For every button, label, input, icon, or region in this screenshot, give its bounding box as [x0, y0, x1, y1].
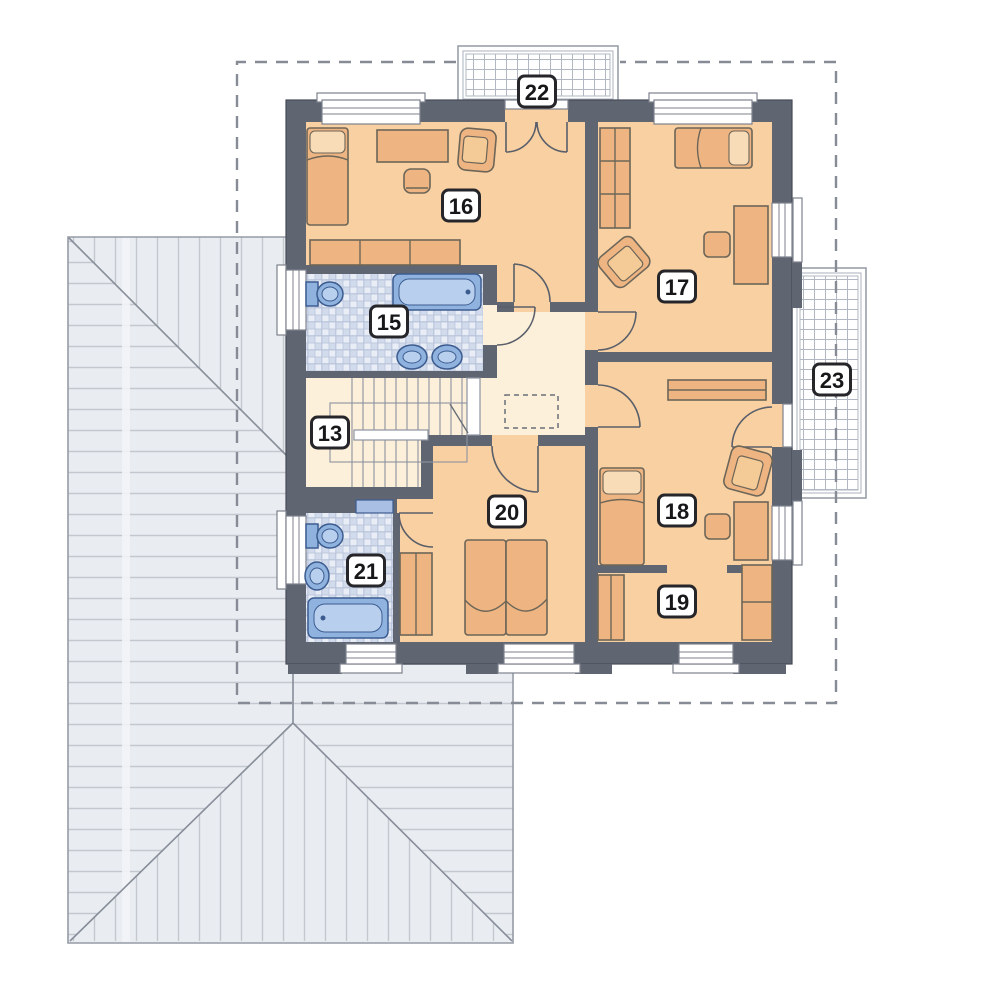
side-table	[704, 232, 730, 257]
sink-icon	[397, 345, 427, 369]
room-19-opening	[667, 565, 727, 573]
balcony-23-threshold	[783, 404, 792, 447]
room-badge-20: 20	[489, 496, 526, 527]
armchair	[457, 128, 497, 173]
room-20-door-opening	[492, 435, 538, 446]
toilet-icon	[306, 524, 343, 548]
roof-valley-band	[122, 237, 130, 942]
room-badge-15: 15	[371, 306, 408, 337]
room-badge-17: 17	[659, 271, 696, 302]
pilaster-bottom-4	[733, 664, 786, 674]
bathtub-icon	[393, 274, 481, 310]
room-18-door-opening	[585, 385, 598, 427]
pilaster-bottom-1	[288, 664, 342, 674]
room-badge-label: 22	[525, 80, 549, 105]
window-room-16	[317, 93, 425, 124]
room-badge-label: 16	[449, 194, 473, 219]
stool	[404, 169, 430, 193]
window-room-20-bottom	[498, 644, 580, 673]
bed-pillow	[603, 471, 641, 494]
sink-icon	[432, 345, 462, 369]
floor-plan-page: 13151617181920212223	[0, 0, 994, 1000]
room-badge-21: 21	[348, 555, 385, 586]
double-bed-right	[506, 540, 547, 635]
pilaster-bottom-2	[466, 664, 498, 674]
bathtub-icon	[308, 598, 388, 638]
hall-floor	[497, 312, 585, 435]
bathroom-21-door-opening	[397, 499, 433, 513]
room-badge-label: 21	[354, 559, 378, 584]
window-bathroom-21	[277, 511, 306, 589]
bed-pillow	[310, 131, 345, 153]
room-badge-16: 16	[443, 190, 480, 221]
room-badge-18: 18	[659, 495, 696, 526]
bed-pillow	[729, 131, 749, 165]
stair-railing-middle	[354, 430, 428, 440]
window-room-17-top	[649, 93, 757, 124]
room-badge-label: 17	[665, 275, 689, 300]
window-room-18-right	[772, 501, 802, 565]
desk	[734, 502, 768, 560]
room-badge-label: 19	[665, 590, 689, 615]
room-badge-label: 23	[820, 368, 844, 393]
pilaster-right-top	[792, 256, 802, 308]
hall-floor-west	[480, 378, 497, 435]
floor-plan-drawing: 13151617181920212223	[0, 0, 994, 1000]
room-badge-19: 19	[659, 586, 696, 617]
pilaster-right-bottom	[792, 450, 802, 502]
room-badge-22: 22	[519, 76, 556, 107]
window-bathroom-21-bottom	[340, 644, 402, 673]
window-bathroom-15	[277, 265, 306, 335]
room-badge-label: 20	[495, 500, 519, 525]
sink-icon	[305, 562, 329, 590]
window-room-19-bottom	[673, 644, 739, 673]
room-badge-label: 13	[318, 421, 342, 446]
desk	[377, 130, 448, 162]
window-room-17-right	[772, 198, 802, 262]
room-20-furniture	[400, 540, 547, 635]
room-badge-23: 23	[814, 364, 851, 395]
room-badge-label: 15	[377, 310, 401, 335]
bathroom-15-door-opening	[483, 305, 497, 345]
side-table	[705, 514, 730, 539]
toilet-icon	[306, 282, 343, 306]
stair-railing-vertical	[467, 378, 480, 435]
dresser	[310, 240, 460, 265]
room-badge-label: 18	[665, 499, 689, 524]
double-bed-left	[465, 540, 506, 635]
room-17-door-opening	[585, 312, 598, 350]
shelf-icon	[356, 500, 393, 513]
room-16-floor-south	[497, 265, 585, 302]
desk	[734, 206, 768, 284]
room-badge-13: 13	[312, 417, 349, 448]
